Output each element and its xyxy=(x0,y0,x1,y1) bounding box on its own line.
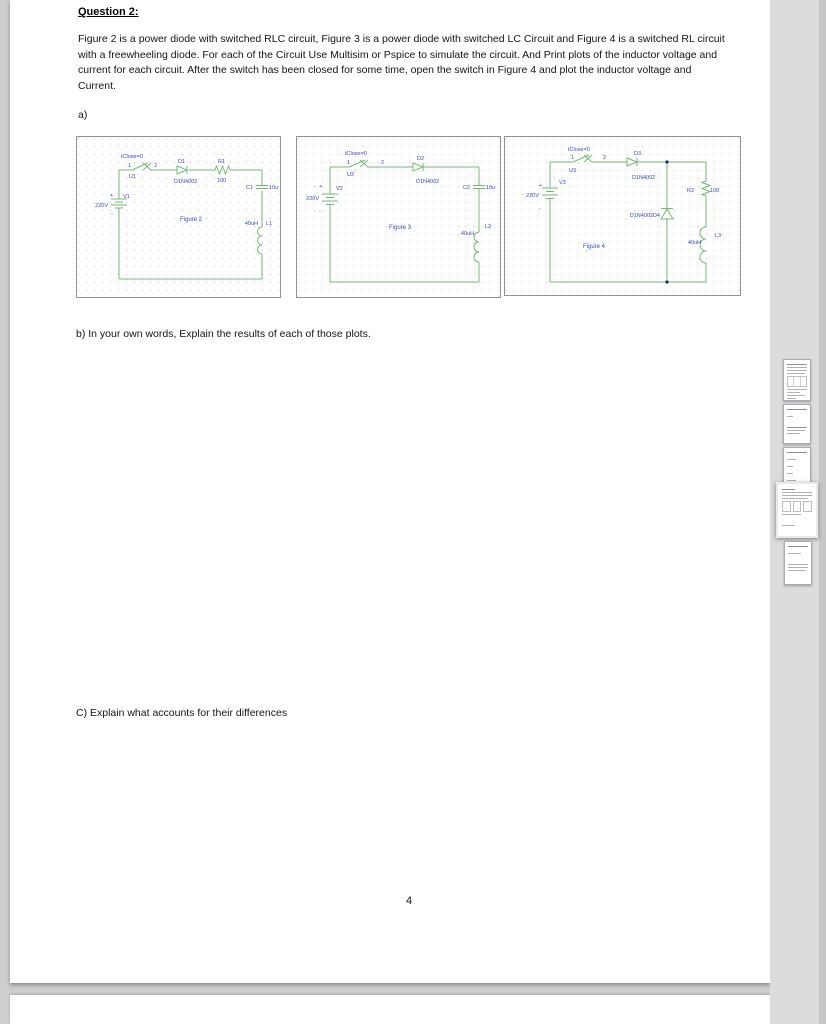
terminal-2-label: 2 xyxy=(381,160,384,166)
document-page: Question 2: Figure 2 is a power diode wi… xyxy=(10,0,770,983)
grid-background xyxy=(297,137,500,297)
terminal-1-label: 1 xyxy=(347,160,350,166)
thumb-line xyxy=(782,495,812,496)
plus-sign: + xyxy=(539,183,542,189)
circuit-figure-2: tClose=0 1 2 U1 D1 D1N4002 R1 100 C1 10u xyxy=(76,136,281,298)
page-thumbnail-2[interactable] xyxy=(783,404,811,444)
resistor-value: 100 xyxy=(710,188,719,194)
thumb-line xyxy=(787,398,796,399)
source-value: 220V xyxy=(95,203,108,209)
next-page-edge xyxy=(10,995,770,1024)
capacitor-value: 10u xyxy=(486,185,495,191)
plus-sign: + xyxy=(319,184,322,190)
part-c-label: C) Explain what accounts for their diffe… xyxy=(76,707,287,719)
thumb-line xyxy=(787,364,807,365)
thumb-line xyxy=(782,498,808,499)
question-title: Question 2: xyxy=(78,6,139,18)
thumb-table xyxy=(787,376,807,387)
source-value: 220V xyxy=(526,193,539,199)
figure-2-caption: Figure 2 xyxy=(180,217,203,223)
minus-sign: - xyxy=(319,209,321,215)
thumb-line xyxy=(787,427,807,428)
resistor-value: 100 xyxy=(217,178,226,184)
inductor-value: 40uH xyxy=(688,240,701,246)
part-a-label: a) xyxy=(78,109,87,121)
diode-model: D1N4002 xyxy=(632,175,655,181)
terminal-2-label: 2 xyxy=(154,163,157,169)
page-number: 4 xyxy=(394,895,424,907)
scrollbar-track[interactable] xyxy=(819,0,826,1024)
thumb-line xyxy=(787,392,800,393)
diode-refdes: D1 xyxy=(178,159,185,165)
question-paragraph: Figure 2 is a power diode with switched … xyxy=(78,32,732,94)
switch-refdes: U2 xyxy=(347,172,354,178)
inductor-refdes: L3 xyxy=(715,233,721,239)
grid-background xyxy=(505,137,740,295)
figure-4-caption: Figure 4 xyxy=(583,244,606,250)
capacitor-refdes: C2 xyxy=(463,185,470,191)
thumb-line xyxy=(782,489,795,490)
switch-refdes: U1 xyxy=(129,174,136,180)
thumb-line xyxy=(787,370,807,371)
part-b-label: b) In your own words, Explain the result… xyxy=(76,328,371,340)
bottom-node-dot xyxy=(665,280,668,283)
freewheel-diode-label: D1N4002D4 xyxy=(630,213,660,219)
circuit-figure-2-diagram: tClose=0 1 2 U1 D1 D1N4002 R1 100 C1 10u xyxy=(77,137,280,297)
page-thumbnail-5[interactable] xyxy=(784,541,812,585)
diode-model: D1N4002 xyxy=(416,179,439,185)
thumb-line xyxy=(787,367,807,368)
top-node-dot xyxy=(665,160,668,163)
thumb-line xyxy=(788,564,808,565)
resistor-refdes: R1 xyxy=(218,159,225,165)
capacitor-refdes: C1 xyxy=(246,185,253,191)
circuit-figure-4: tClose=0 1 2 U3 D3 D1N4002 D1N4002D4 R2 … xyxy=(504,136,741,296)
plus-sign: + xyxy=(110,193,113,199)
diode-refdes: D3 xyxy=(634,151,641,157)
thumb-line xyxy=(787,395,805,396)
minus-sign: - xyxy=(539,206,541,212)
minus-sign: - xyxy=(111,212,113,218)
thumb-circuit-row xyxy=(781,501,813,512)
figure-3-caption: Figure 3 xyxy=(389,225,412,231)
tclose-label: tClose=0 xyxy=(121,154,143,160)
thumb-line xyxy=(782,492,812,493)
inductor-refdes: L2 xyxy=(485,224,491,230)
thumb-line xyxy=(787,480,796,481)
source-value: 220V xyxy=(306,196,319,202)
capacitor-value: 10u xyxy=(269,185,278,191)
document-viewer: { "colors": { "canvas_bg": "#cdced0", "p… xyxy=(0,0,826,1024)
page-thumbnail-3[interactable] xyxy=(783,447,811,485)
terminal-1-label: 1 xyxy=(571,155,574,161)
circuit-figure-3-diagram: tClose=0 1 2 U2 D2 D1N4002 C2 10u 40uH L… xyxy=(297,137,500,297)
thumb-line xyxy=(782,525,795,526)
thumb-line xyxy=(787,389,807,390)
circuit-figure-3: tClose=0 1 2 U2 D2 D1N4002 C2 10u 40uH L… xyxy=(296,136,501,298)
thumb-line xyxy=(787,430,805,431)
source-refdes: V3 xyxy=(559,180,566,186)
thumb-line xyxy=(787,433,800,434)
inductor-value: 40uH xyxy=(461,231,474,237)
circuit-figure-4-diagram: tClose=0 1 2 U3 D3 D1N4002 D1N4002D4 R2 … xyxy=(505,137,740,295)
page-thumbnail-1[interactable] xyxy=(783,359,811,401)
source-refdes: V2 xyxy=(336,186,343,192)
thumb-line xyxy=(788,567,808,568)
source-refdes: V1 xyxy=(123,194,130,200)
diode-model: D1N4002 xyxy=(174,179,197,185)
tclose-label: tClose=0 xyxy=(568,147,590,153)
thumb-line xyxy=(787,373,805,374)
switch-refdes: U3 xyxy=(569,168,576,174)
terminal-1-label: 1 xyxy=(128,163,131,169)
terminal-2-label: 2 xyxy=(603,155,606,161)
thumbnail-sidebar xyxy=(770,0,826,1024)
page-thumbnail-4-current[interactable] xyxy=(776,482,818,538)
thumb-line xyxy=(788,570,806,571)
tclose-label: tClose=0 xyxy=(345,151,367,157)
inductor-value: 40uH xyxy=(245,221,258,227)
resistor-refdes: R2 xyxy=(687,188,694,194)
diode-refdes: D2 xyxy=(417,156,424,162)
inductor-refdes: L1 xyxy=(266,221,272,227)
